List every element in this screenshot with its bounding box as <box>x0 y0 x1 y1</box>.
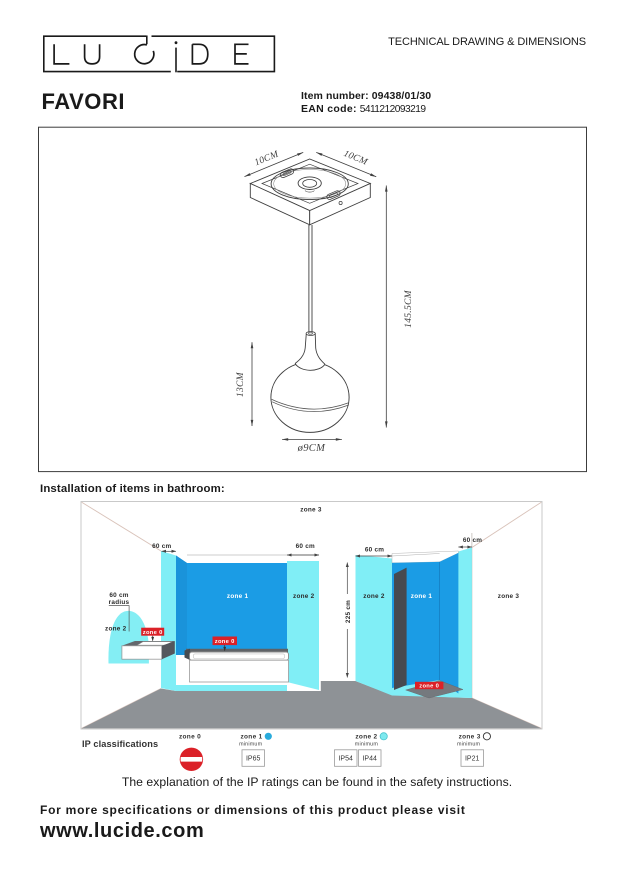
svg-text:zone 3: zone 3 <box>459 734 481 741</box>
svg-text:zone 0: zone 0 <box>419 684 439 690</box>
svg-text:zone 2: zone 2 <box>105 625 127 632</box>
svg-text:10CM: 10CM <box>342 149 370 168</box>
svg-text:zone 0: zone 0 <box>143 630 163 636</box>
svg-text:zone 2: zone 2 <box>363 593 385 600</box>
svg-text:zone 3: zone 3 <box>498 593 520 600</box>
svg-text:60 cm: 60 cm <box>109 592 128 599</box>
svg-text:IP21: IP21 <box>465 756 480 763</box>
svg-text:minimum: minimum <box>457 741 481 747</box>
svg-text:zone 1: zone 1 <box>411 593 433 600</box>
svg-text:zone 1: zone 1 <box>227 593 249 600</box>
svg-text:60 cm: 60 cm <box>463 537 482 544</box>
svg-text:radius: radius <box>109 599 130 606</box>
svg-text:minimum: minimum <box>355 741 379 747</box>
svg-text:225 cm: 225 cm <box>345 600 352 623</box>
svg-text:zone 0: zone 0 <box>215 639 235 645</box>
svg-text:minimum: minimum <box>239 741 263 747</box>
svg-text:60 cm: 60 cm <box>152 543 171 550</box>
svg-text:13CM: 13CM <box>236 371 246 397</box>
svg-text:ø9CM: ø9CM <box>297 443 326 454</box>
svg-text:60 cm: 60 cm <box>365 547 384 554</box>
svg-text:145.5CM: 145.5CM <box>404 289 414 328</box>
svg-text:60 cm: 60 cm <box>296 543 315 550</box>
svg-text:zone 2: zone 2 <box>293 593 315 600</box>
svg-text:zone 3: zone 3 <box>300 507 322 514</box>
svg-text:zone 2: zone 2 <box>355 734 377 741</box>
svg-text:IP44: IP44 <box>362 756 377 763</box>
svg-text:10CM: 10CM <box>253 149 281 168</box>
svg-text:IP54: IP54 <box>338 756 353 763</box>
svg-text:zone 0: zone 0 <box>179 734 201 741</box>
svg-text:IP65: IP65 <box>246 756 261 763</box>
svg-text:zone 1: zone 1 <box>240 734 262 741</box>
